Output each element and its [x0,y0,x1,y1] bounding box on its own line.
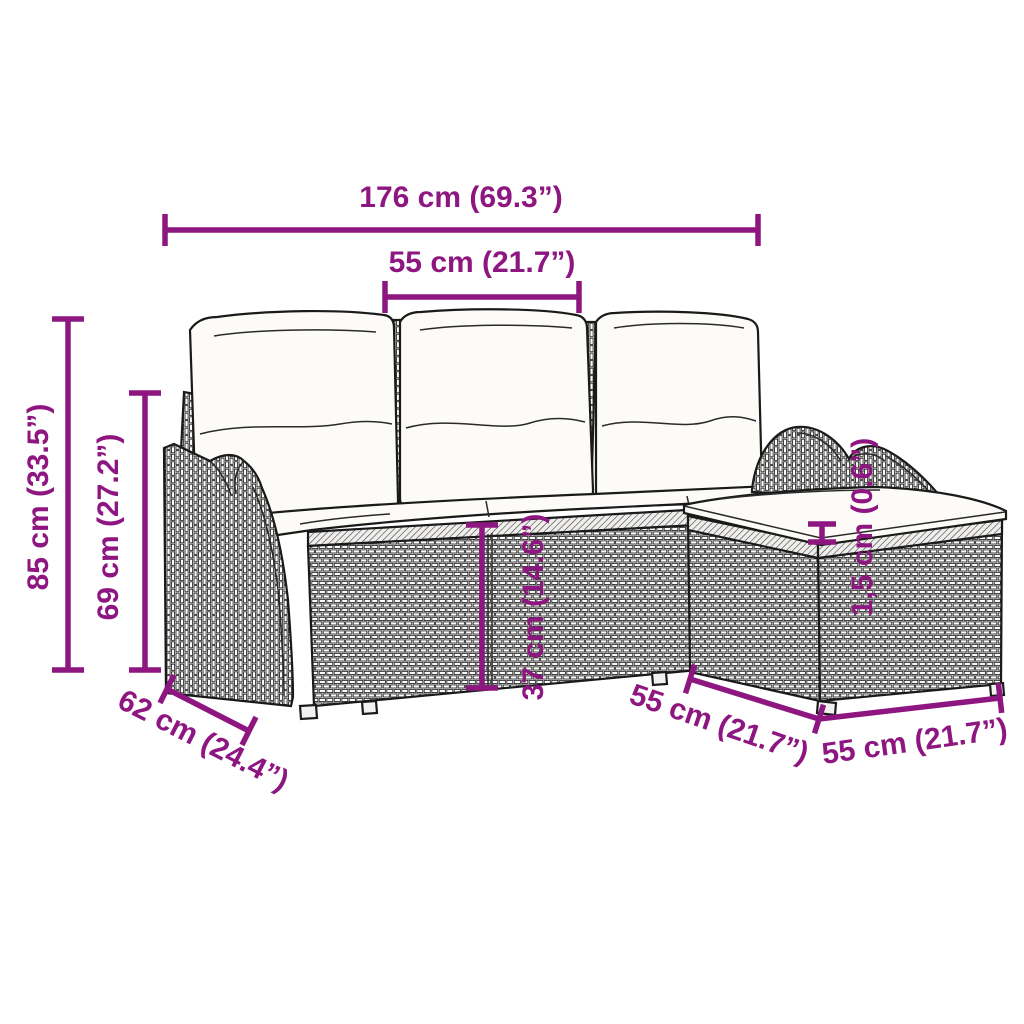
ottoman-width-label: 55 cm (21.7”) [820,712,1010,771]
backrest-height-label: 69 cm (27.2”) [92,434,125,621]
dimension-backrest-height: 69 cm (27.2”) [92,393,161,670]
ottoman [684,487,1006,715]
seat-height-label: 37 cm (14.6”) [517,514,550,701]
dimension-overall-width: 176 cm (69.3”) [165,181,758,246]
product-dimension-diagram: 176 cm (69.3”) 55 cm (21.7”) 85 cm (33.5… [0,0,1024,1024]
dimension-section-width: 55 cm (21.7”) [385,246,579,313]
back-cushion-middle [400,309,593,511]
sofa-illustration [164,309,1006,719]
overall-width-label: 176 cm (69.3”) [359,181,562,214]
back-cushion-right [596,312,762,507]
overall-height-label: 85 cm (33.5”) [22,404,55,591]
section-width-label: 55 cm (21.7”) [389,246,576,279]
dimension-overall-height: 85 cm (33.5”) [22,319,84,670]
sofa-dimension-illustration: 176 cm (69.3”) 55 cm (21.7”) 85 cm (33.5… [0,0,1024,1024]
cushion-thickness-label: 1,5 cm (0.6”) [846,438,879,616]
